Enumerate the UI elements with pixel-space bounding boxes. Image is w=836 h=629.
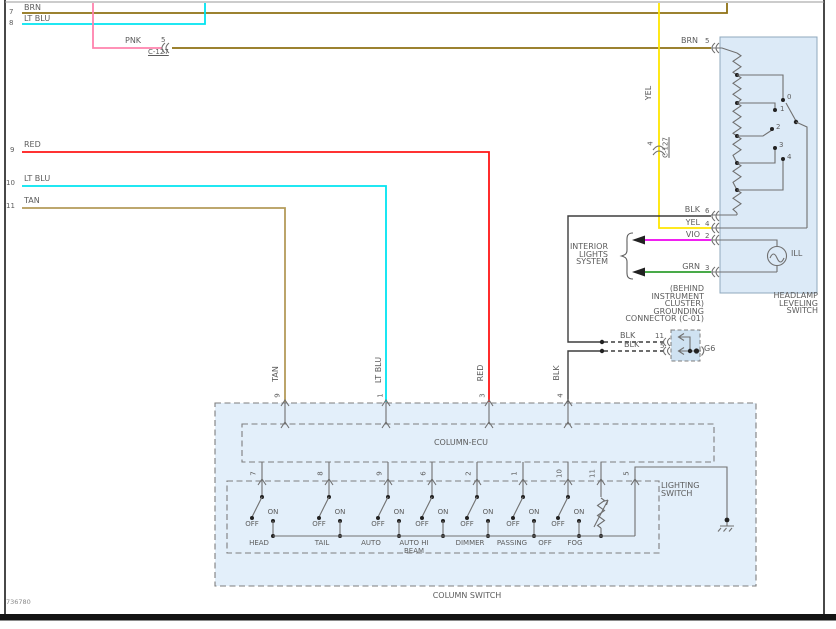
column-ecu-label: COLUMN-ECU [381,439,541,447]
column-switch-title: COLUMN SWITCH [387,592,547,600]
wire-color-label: PNK [125,37,141,45]
switch-position: 0 [787,94,791,101]
pin-num: 5 [660,343,664,350]
off-label: OFF [238,521,266,528]
on-label: ON [435,509,451,516]
grounding-note: (BEHIND INSTRUMENT CLUSTER) GROUNDING CO… [597,285,704,323]
off-label: OFF [364,521,392,528]
off-label: OFF [499,521,527,528]
wire-color-label: YEL [678,219,700,227]
wire-color-label: LT BLU [24,175,50,183]
switch-position: 2 [776,124,780,131]
pin-num: 10 [557,464,564,484]
doc-number: 736780 [6,599,31,606]
wire-color-label: TAN [24,197,40,205]
pin-num: 3 [705,265,709,272]
ground-label: G6 [704,345,715,353]
pin-num: 4 [648,134,655,154]
left-arrow-icon [632,236,645,245]
on-label: ON [332,509,348,516]
off-label: OFF [544,521,572,528]
switch-position: 1 [780,106,784,113]
pin-num: 2 [466,464,473,484]
pin-num: 11 [590,464,597,484]
pin-num: 11 [655,333,664,340]
pin-num: 5 [624,464,631,484]
connector-label: C-127 [148,49,169,56]
diagram-artwork [0,0,836,629]
lighting-switch-label: LIGHTING SWITCH [661,482,699,497]
headlamp-switch-title: HEADLAMP LEVELING SWITCH [730,292,818,315]
on-label: ON [480,509,496,516]
switch-name: HEAD [227,540,291,547]
connector-label: C-127 [663,128,670,168]
switch-name: BEAM [382,548,446,555]
wire-row-num: 7 [9,9,13,16]
on-label: ON [391,509,407,516]
switch-position: 4 [787,154,791,161]
wire-row-num: 10 [6,180,15,187]
pin-num: 4 [705,221,709,228]
left-arrow-icon [632,268,645,277]
lamp-label: ILL [791,250,802,258]
pin-num: 2 [705,233,709,240]
connector-symbol [664,347,671,355]
pin-num: 9 [377,464,384,484]
wire-color-label: BRN [681,37,698,45]
wire-blk-pin4 [568,351,601,402]
wire-color-label: VIO [678,231,700,239]
wire-color-label: RED [24,141,41,149]
on-label: ON [265,509,281,516]
pin-num: 8 [318,464,325,484]
brace-icon [622,233,634,279]
connector-symbol [712,211,719,221]
interior-lights-arrows [622,233,646,279]
c127-connectors [162,43,665,155]
pin-num: 5 [161,37,165,44]
wire-red-9 [22,152,489,402]
grounding-connector [664,330,704,361]
pin-num: 5 [705,38,709,45]
wire-color-label: BLK [624,341,639,349]
pin-num: 4 [558,386,565,406]
pin-num: 3 [480,386,487,406]
wire-color-label: LT BLU [24,15,50,23]
pin-num: 1 [512,464,519,484]
wiring-diagram-page: 7 BRN 8 LT BLU PNK 5 C-127 BRN 5 9 RED 1… [0,0,836,629]
switch-name: AUTO HI [382,540,446,547]
switch-name: FOG [543,540,607,547]
off-label: OFF [305,521,333,528]
connector-symbol [664,338,671,346]
wire-row-num: 9 [10,147,14,154]
wire-brn-7 [22,3,727,13]
pin-num: 1 [378,386,385,406]
wire-color-label: BRN [24,4,41,12]
switch-position: 3 [779,142,783,149]
pin-num: 6 [705,208,709,215]
wire-tan-11 [22,208,285,402]
interior-lights-label: INTERIOR LIGHTS SYSTEM [546,243,608,266]
wire-row-num: 8 [9,20,13,27]
bottom-bar [0,614,836,621]
on-label: ON [526,509,542,516]
wire-color-label: GRN [678,263,700,271]
wire-color-label: BLK [678,206,700,214]
off-label: OFF [453,521,481,528]
on-label: ON [571,509,587,516]
wire-color-label: YEL [645,73,653,113]
wire-ltblu-10 [22,186,386,402]
pin-num: 9 [275,386,282,406]
pin-num: 6 [421,464,428,484]
wire-color-label: BLK [620,332,635,340]
wire-row-num: 11 [6,203,15,210]
off-label: OFF [408,521,436,528]
pin-num: 7 [251,464,258,484]
